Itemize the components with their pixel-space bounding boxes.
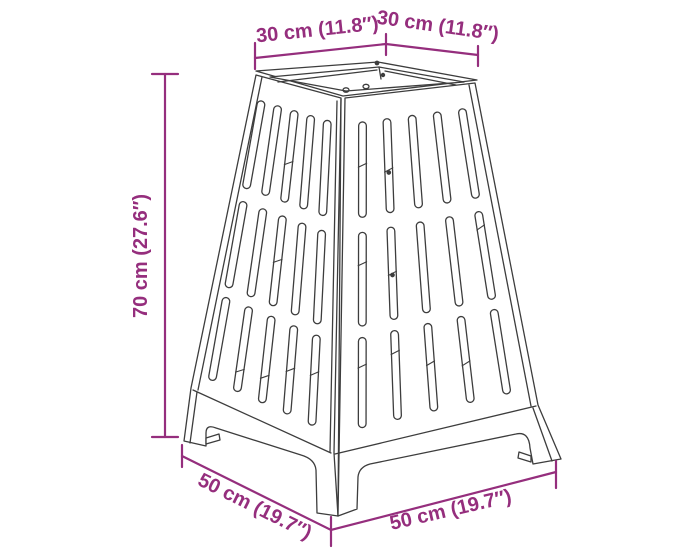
rim-bolt-2 — [381, 73, 385, 77]
dim-label-top-right: 30 cm (11.8″) — [375, 7, 500, 46]
dim-line-top — [255, 44, 478, 58]
fire-basket-drawing: 30 cm (11.8″) 30 cm (11.8″) 70 cm (27.6″… — [0, 0, 700, 550]
dim-label-bottom-left: 50 cm (19.7″) — [194, 469, 315, 544]
dim-label-top-left: 30 cm (11.8″) — [255, 13, 380, 48]
rim-bolt-1 — [375, 61, 380, 66]
right-foot-tab — [518, 452, 531, 462]
product-dimension-diagram: 30 cm (11.8″) 30 cm (11.8″) 70 cm (27.6″… — [0, 0, 700, 550]
basket-body — [184, 61, 561, 516]
dim-label-height: 70 cm (27.6″) — [130, 194, 152, 318]
left-foot-tab — [206, 434, 220, 444]
basket-right-face — [338, 83, 561, 516]
dim-label-bottom-right: 50 cm (19.7″) — [388, 485, 514, 534]
